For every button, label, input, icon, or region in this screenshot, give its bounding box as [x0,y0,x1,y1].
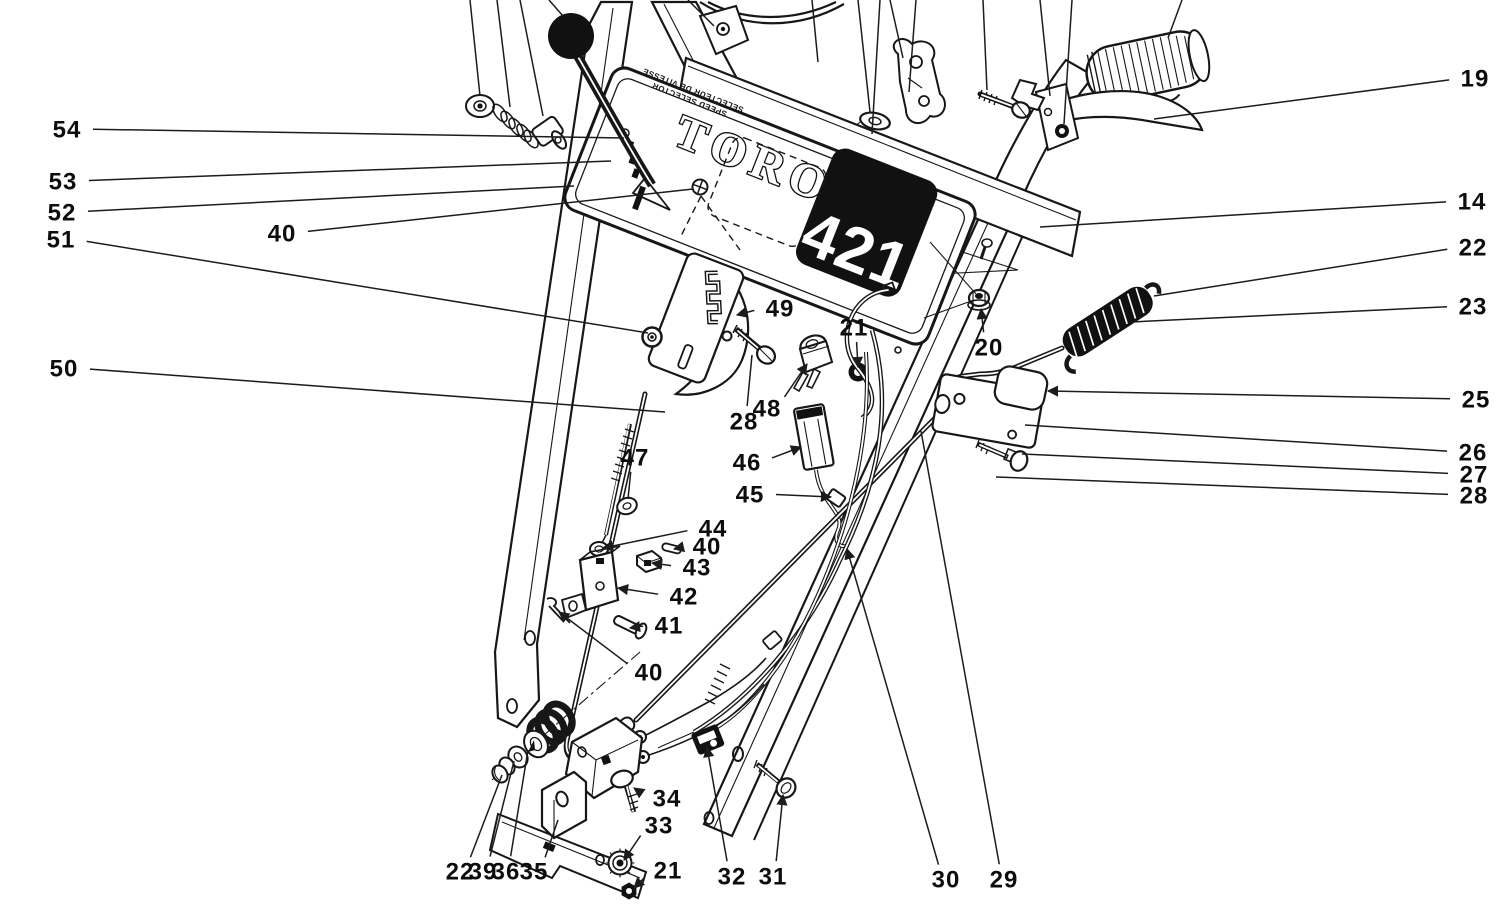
svg-text:28: 28 [730,409,759,436]
callout-14: 14 [1040,189,1486,228]
svg-text:40: 40 [268,221,297,248]
top-leader-line [470,0,480,96]
svg-text:21: 21 [840,315,869,342]
bail-lever [1036,84,1202,150]
svg-text:23: 23 [1459,294,1488,321]
callout-45: 45 [736,482,831,509]
svg-text:28: 28 [1460,483,1489,510]
svg-text:22: 22 [1459,235,1488,262]
svg-text:14: 14 [1458,189,1487,216]
svg-text:20: 20 [975,335,1004,362]
top-leader-line [983,0,987,90]
callout-28: 28 [996,477,1488,510]
top-leader-line [1040,0,1050,96]
screw-31 [754,760,799,801]
svg-text:43: 43 [683,555,712,582]
svg-text:50: 50 [50,356,79,383]
svg-text:45: 45 [736,482,765,509]
callout-46: 46 [733,447,801,477]
svg-text:32: 32 [718,864,747,891]
svg-text:54: 54 [53,117,82,144]
callout-25: 25 [1048,387,1490,414]
svg-text:40: 40 [635,660,664,687]
shift-knob-ball [548,13,594,59]
parts-diagram-page: TORO 421 SPEED SELECTOR SELECTEUR DE VIT… [0,0,1501,906]
svg-text:42: 42 [670,584,699,611]
svg-text:34: 34 [653,786,682,813]
callout-22: 22 [1154,235,1487,297]
svg-text:31: 31 [759,864,788,891]
top-leader-line [549,0,563,16]
svg-text:19: 19 [1461,66,1490,93]
svg-text:29: 29 [990,867,1019,894]
svg-text:41: 41 [655,613,684,640]
svg-text:33: 33 [645,813,674,840]
callout-30: 30 [847,549,960,894]
svg-text:35: 35 [520,859,549,886]
svg-text:49: 49 [766,296,795,323]
callout-53: 53 [49,161,611,196]
exploded-parts-diagram: TORO 421 SPEED SELECTOR SELECTEUR DE VIT… [0,0,1501,906]
callout-27: 27 [1022,454,1488,489]
spring-22-23 [1050,275,1172,374]
svg-text:46: 46 [733,450,762,477]
top-leader-line [497,0,510,107]
flange-nut-33 [606,849,635,878]
wire-harness-46 [794,404,845,546]
fastener-stack-topleft [466,95,569,151]
callout-31: 31 [759,795,788,891]
svg-text:52: 52 [48,200,77,227]
key-switch-48 [794,332,832,391]
svg-text:47: 47 [621,445,650,472]
callout-40: 40 [559,612,663,687]
svg-text:51: 51 [47,227,76,254]
callout-23: 23 [1131,294,1487,323]
top-leader-line [520,0,543,116]
svg-text:36: 36 [492,859,521,886]
callout-33: 33 [624,813,673,861]
callout-52: 52 [48,186,574,227]
svg-text:21: 21 [654,858,683,885]
callout-34: 34 [634,786,681,813]
callout-29: 29 [921,431,1018,894]
selector-gate [643,251,749,394]
svg-text:53: 53 [49,169,78,196]
svg-text:30: 30 [932,867,961,894]
svg-text:25: 25 [1462,387,1491,414]
callout-26: 26 [1025,425,1487,467]
top-leader-line [858,0,870,112]
callout-42: 42 [618,584,698,611]
pivot-bracket-26 [931,364,1050,448]
callout-20: 20 [975,309,1004,362]
